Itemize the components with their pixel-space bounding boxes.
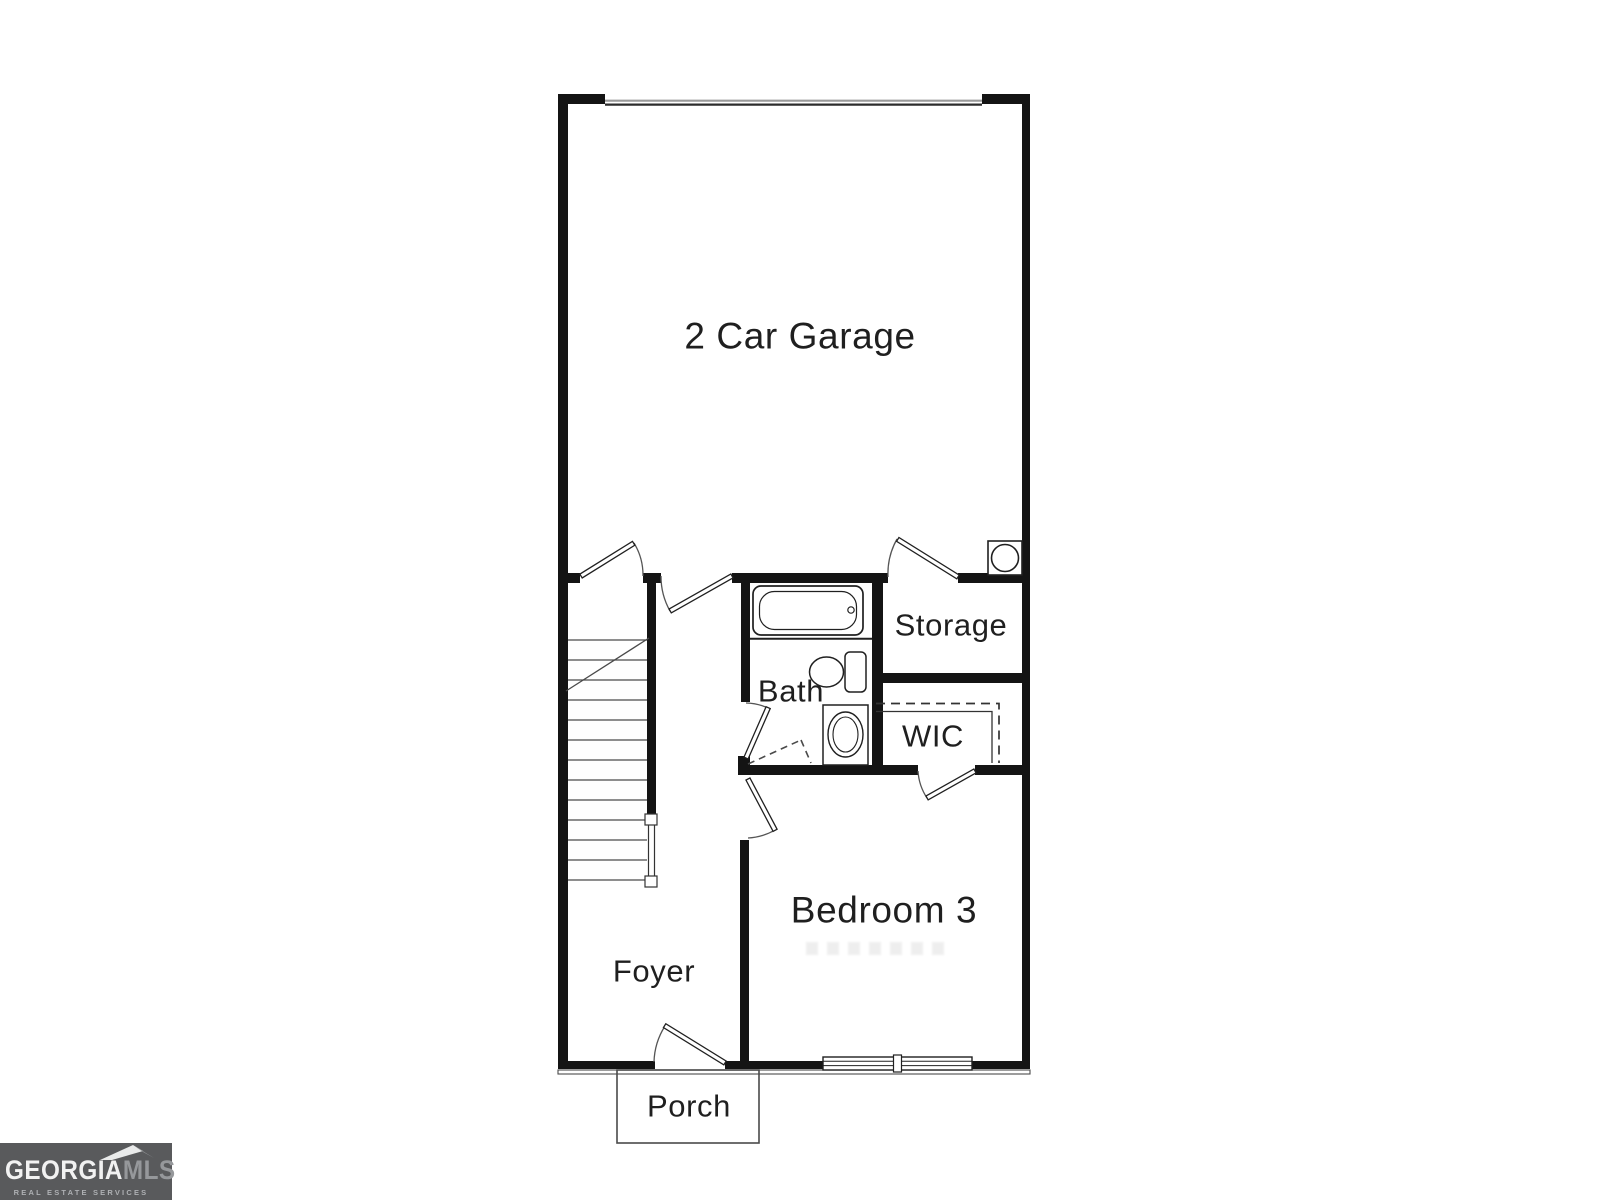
wall-garage-bottom-stub-left: [558, 573, 580, 583]
door-hall-to-garage: [661, 574, 733, 613]
wall-top-left-block: [558, 94, 605, 104]
stair-railing-icon: [645, 814, 657, 887]
door-swing-icon: [888, 539, 897, 577]
water-heater-icon: [988, 541, 1022, 575]
garage-door-icon: [605, 101, 982, 105]
floor-plan-canvas: 2 Car Garage Storage Bath WIC Bedroom 3 …: [0, 0, 1600, 1200]
wall-stair: [647, 573, 656, 817]
door-wic: [918, 769, 976, 800]
wall-storage-wic-divider: [883, 673, 1030, 683]
door-leaf: [897, 538, 960, 579]
door-bedroom3: [746, 778, 777, 838]
logo-brand: GEORGIAMLS: [5, 1155, 176, 1186]
faint-print-artifact: [806, 942, 946, 955]
staircase-icon: [566, 638, 649, 880]
bathtub-icon: [753, 586, 863, 635]
room-label-bedroom3: Bedroom 3: [791, 892, 977, 929]
wall-bottom-center: [725, 1061, 823, 1069]
room-label-storage: Storage: [895, 610, 1008, 641]
wall-wic-bottom-left: [738, 765, 918, 775]
wall-bedroom-left: [740, 840, 749, 1061]
door-swing-icon: [748, 830, 775, 838]
door-bath: [744, 703, 770, 759]
door-swing-icon: [918, 771, 927, 798]
floor-plan-drawing: [0, 0, 1600, 1200]
door-leaf: [746, 778, 777, 831]
room-label-foyer: Foyer: [613, 956, 695, 987]
room-label-porch: Porch: [647, 1091, 731, 1122]
door-leaf: [926, 769, 976, 800]
wall-bottom-foyer: [558, 1061, 655, 1069]
window-icon: [823, 1055, 972, 1072]
room-label-garage: 2 Car Garage: [684, 318, 915, 355]
logo-brand-primary: GEORGIA: [5, 1155, 123, 1185]
door-leaf: [580, 541, 635, 578]
logo-brand-secondary: MLS: [123, 1155, 176, 1185]
wall-bath-right: [872, 573, 883, 775]
room-label-wic: WIC: [902, 721, 964, 752]
wall-garage-bottom-main: [732, 573, 888, 583]
wall-bottom-right: [972, 1061, 1030, 1069]
door-leaf: [669, 574, 733, 613]
wall-wic-bottom-right: [975, 765, 1030, 775]
door-swing-icon: [654, 1026, 665, 1062]
door-storage-to-garage: [888, 538, 959, 579]
door-landing-to-garage: [580, 541, 643, 578]
dashed-door-swing-icon: [748, 740, 811, 764]
sink-icon: [823, 705, 868, 765]
wall-bath-left: [741, 573, 750, 702]
door-front-entry: [654, 1024, 726, 1065]
door-swing-icon: [661, 576, 670, 611]
georgia-mls-logo: GEORGIAMLS REAL ESTATE SERVICES: [0, 1143, 172, 1200]
stair-treads: [568, 640, 647, 880]
room-label-bath: Bath: [758, 676, 824, 707]
door-swing-icon: [634, 543, 643, 576]
door-leaf: [744, 707, 770, 759]
logo-tagline: REAL ESTATE SERVICES: [0, 1188, 162, 1197]
door-leaf: [663, 1024, 726, 1065]
stair-break-line: [566, 638, 649, 691]
